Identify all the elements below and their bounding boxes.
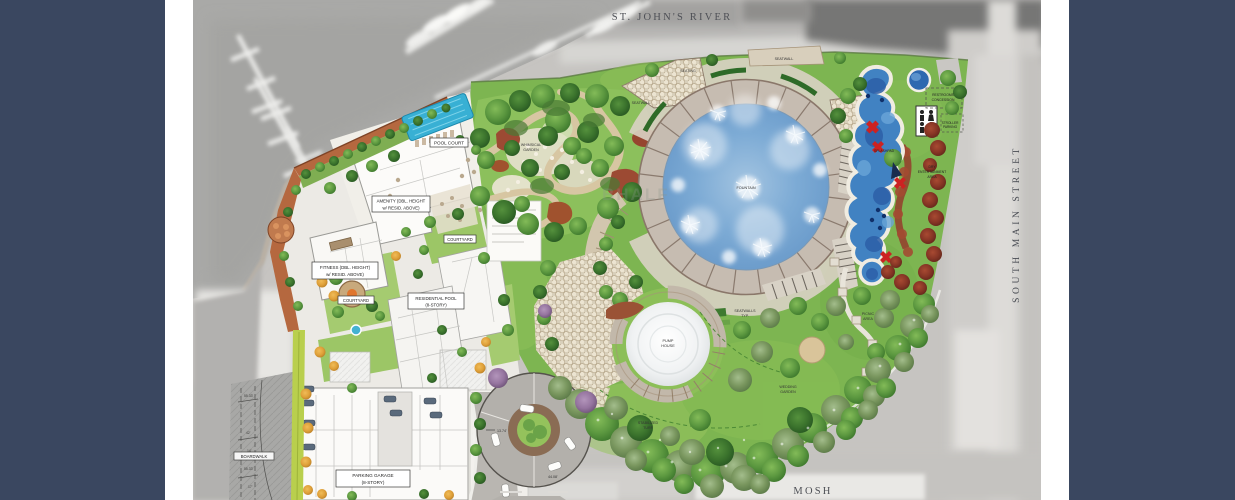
svg-text:13.74': 13.74' [497, 429, 507, 433]
svg-text:MOSH: MOSH [793, 486, 832, 497]
svg-text:55.33': 55.33' [244, 467, 253, 471]
svg-text:44.08': 44.08' [548, 475, 558, 479]
svg-text:PARKING: PARKING [943, 125, 958, 129]
svg-text:TURF: TURF [643, 426, 653, 430]
svg-text:COURTYARD: COURTYARD [343, 298, 369, 303]
svg-text:AMENITY (DBL. HEIGHT: AMENITY (DBL. HEIGHT [377, 199, 426, 204]
svg-text:CONCESSION: CONCESSION [932, 98, 955, 102]
svg-text:WEDDING: WEDDING [779, 385, 797, 389]
svg-text:(8-STORY): (8-STORY) [362, 480, 385, 485]
svg-text:FOUNTAIN: FOUNTAIN [736, 186, 755, 190]
svg-text:DRY: DRY [928, 165, 936, 169]
svg-text:WHIMSICAL: WHIMSICAL [521, 143, 541, 147]
svg-text:GARDEN: GARDEN [523, 148, 539, 152]
svg-text:SEATWALL: SEATWALL [632, 101, 651, 105]
svg-text:w/ RESID. ABOVE): w/ RESID. ABOVE) [382, 205, 420, 210]
svg-text:GARDEN: GARDEN [780, 390, 796, 394]
svg-text:RESIDENTIAL POOL: RESIDENTIAL POOL [415, 296, 457, 301]
svg-text:AREA: AREA [863, 317, 873, 321]
svg-text:PUMP: PUMP [663, 339, 674, 343]
svg-text:SEATING: SEATING [680, 69, 696, 73]
svg-text:PICNIC: PICNIC [862, 312, 875, 316]
svg-text:PARKING GARAGE: PARKING GARAGE [352, 473, 393, 478]
svg-text:BHALF: BHALF [602, 185, 670, 204]
svg-text:SEATWALLS: SEATWALLS [734, 309, 756, 313]
svg-text:ENTERTAINMENT: ENTERTAINMENT [918, 170, 947, 174]
svg-text:AREA: AREA [927, 175, 937, 179]
svg-text:42': 42' [246, 431, 251, 435]
svg-text:TYP.: TYP. [741, 314, 749, 318]
svg-text:COURTYARD: COURTYARD [447, 237, 473, 242]
svg-text:STABILIZED: STABILIZED [638, 421, 659, 425]
svg-text:POOL COURT: POOL COURT [434, 141, 464, 146]
svg-text:(8-STORY): (8-STORY) [425, 302, 447, 307]
svg-text:ST. JOHN'S RIVER: ST. JOHN'S RIVER [612, 12, 733, 23]
svg-text:RESTROOMS: RESTROOMS [932, 93, 955, 97]
svg-text:SEATWALL: SEATWALL [775, 57, 794, 61]
svg-text:BOARDWALK: BOARDWALK [241, 454, 268, 459]
svg-text:FITNESS (DBL. HEIGHT): FITNESS (DBL. HEIGHT) [320, 265, 371, 270]
svg-text:17': 17' [248, 485, 253, 489]
svg-text:SOUTH MAIN STREET: SOUTH MAIN STREET [1012, 145, 1022, 303]
svg-text:SPLASHPAD: SPLASHPAD [874, 149, 895, 153]
svg-text:55.33': 55.33' [244, 394, 253, 398]
svg-text:w/ RESID. ABOVE): w/ RESID. ABOVE) [326, 272, 364, 277]
svg-text:HOUSE: HOUSE [661, 344, 675, 348]
